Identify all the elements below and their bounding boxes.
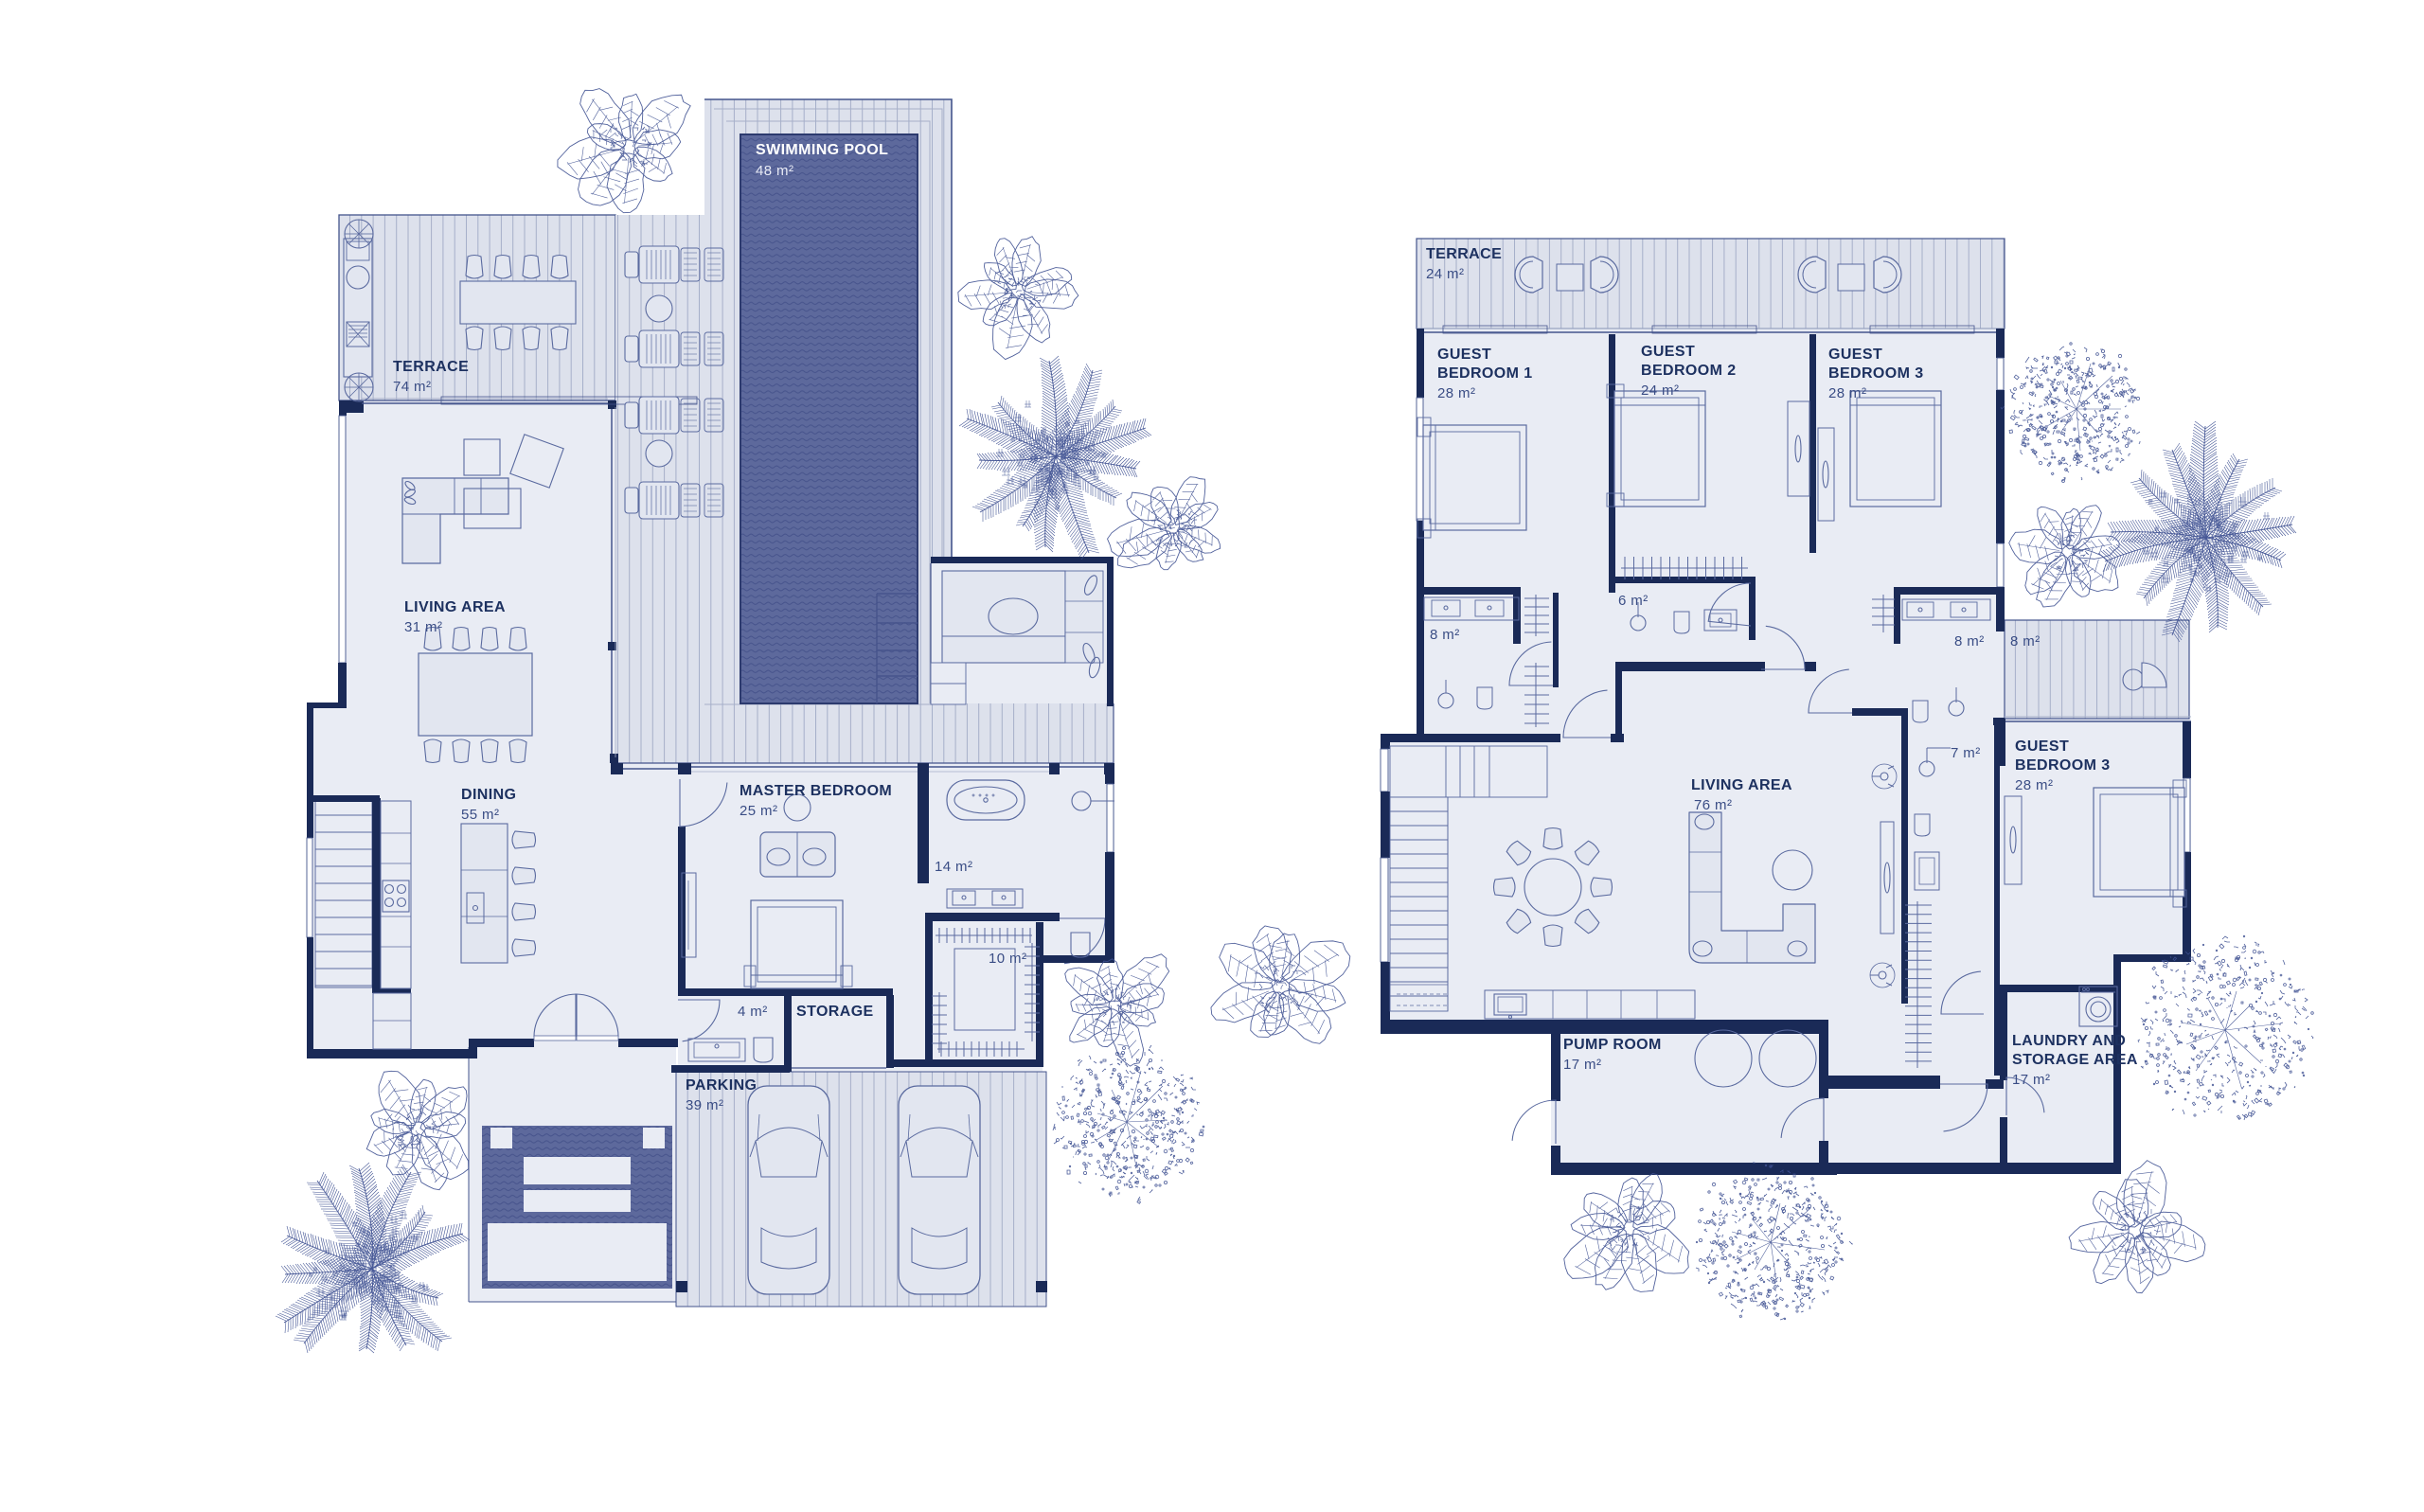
svg-text:14 m²: 14 m² — [935, 859, 972, 875]
svg-text:28 m²: 28 m² — [1828, 385, 1866, 401]
svg-text:6 m²: 6 m² — [1618, 593, 1649, 609]
svg-text:LIVING AREA: LIVING AREA — [1691, 777, 1792, 793]
svg-text:39 m²: 39 m² — [686, 1097, 723, 1113]
svg-text:8 m²: 8 m² — [2010, 633, 2041, 649]
svg-text:BEDROOM 2: BEDROOM 2 — [1641, 363, 1737, 379]
svg-text:LAUNDRY AND: LAUNDRY AND — [2012, 1033, 2126, 1049]
svg-text:24 m²: 24 m² — [1641, 382, 1679, 399]
svg-text:STORAGE: STORAGE — [796, 1004, 874, 1020]
svg-text:55 m²: 55 m² — [461, 807, 499, 823]
svg-text:DINING: DINING — [461, 787, 516, 803]
svg-text:7 m²: 7 m² — [1951, 745, 1981, 761]
svg-text:28 m²: 28 m² — [1437, 385, 1475, 401]
svg-text:TERRACE: TERRACE — [393, 359, 469, 375]
svg-text:BEDROOM 1: BEDROOM 1 — [1437, 365, 1533, 382]
svg-text:4 m²: 4 m² — [738, 1004, 768, 1020]
svg-text:25 m²: 25 m² — [740, 803, 777, 819]
svg-text:8 m²: 8 m² — [1430, 627, 1460, 643]
svg-text:48 m²: 48 m² — [756, 163, 793, 179]
svg-text:17 m²: 17 m² — [1563, 1057, 1601, 1073]
svg-text:17 m²: 17 m² — [2012, 1072, 2050, 1088]
svg-text:GUEST: GUEST — [1828, 347, 1882, 363]
svg-text:76 m²: 76 m² — [1694, 797, 1732, 813]
svg-text:10 m²: 10 m² — [989, 951, 1026, 967]
svg-text:SWIMMING POOL: SWIMMING POOL — [756, 142, 888, 158]
svg-text:74 m²: 74 m² — [393, 379, 431, 395]
svg-text:PARKING: PARKING — [686, 1077, 757, 1094]
svg-text:TERRACE: TERRACE — [1426, 246, 1502, 262]
svg-text:24 m²: 24 m² — [1426, 266, 1464, 282]
svg-text:BEDROOM 3: BEDROOM 3 — [1828, 365, 1924, 382]
svg-text:28 m²: 28 m² — [2015, 777, 2053, 793]
svg-text:GUEST: GUEST — [1641, 344, 1695, 360]
svg-text:PUMP ROOM: PUMP ROOM — [1563, 1037, 1662, 1053]
svg-text:GUEST: GUEST — [1437, 347, 1491, 363]
svg-text:STORAGE AREA: STORAGE AREA — [2012, 1052, 2138, 1068]
svg-text:8 m²: 8 m² — [1954, 633, 1985, 649]
svg-text:LIVING AREA: LIVING AREA — [404, 599, 506, 615]
svg-text:BEDROOM 3: BEDROOM 3 — [2015, 757, 2111, 774]
svg-text:MASTER BEDROOM: MASTER BEDROOM — [740, 783, 892, 799]
svg-text:31 m²: 31 m² — [404, 619, 442, 635]
svg-text:GUEST: GUEST — [2015, 738, 2069, 755]
